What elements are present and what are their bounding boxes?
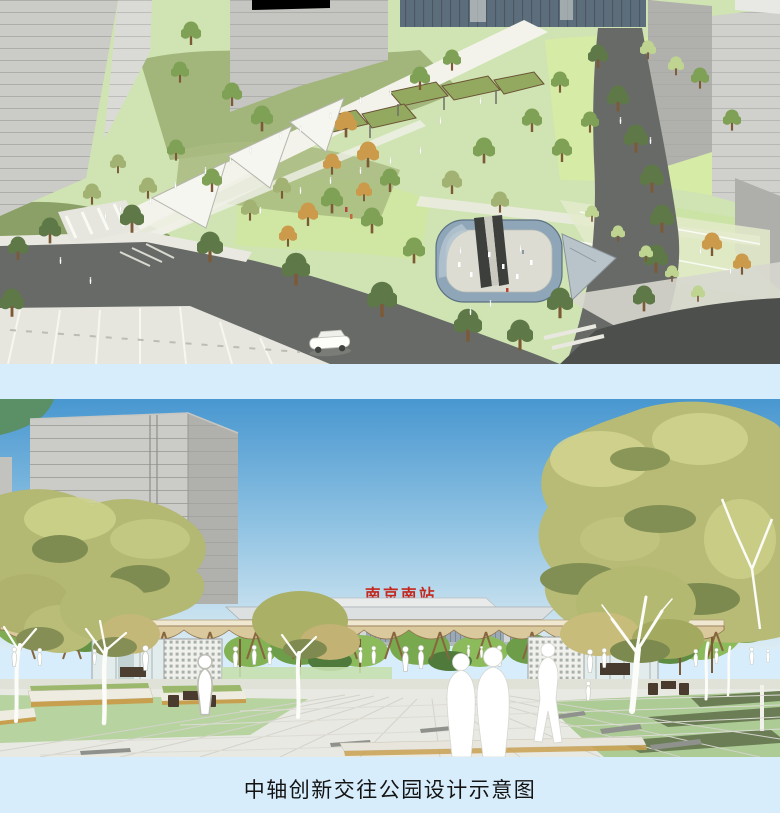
aerial-render-figure [0, 0, 780, 364]
figure-caption: 中轴创新交往公园设计示意图 [0, 757, 780, 813]
lamp-pole [760, 685, 764, 731]
document-page: 南京南站 [0, 0, 780, 813]
lattice-panel-1 [164, 639, 222, 681]
plaza-render-figure: 南京南站 [0, 399, 780, 757]
